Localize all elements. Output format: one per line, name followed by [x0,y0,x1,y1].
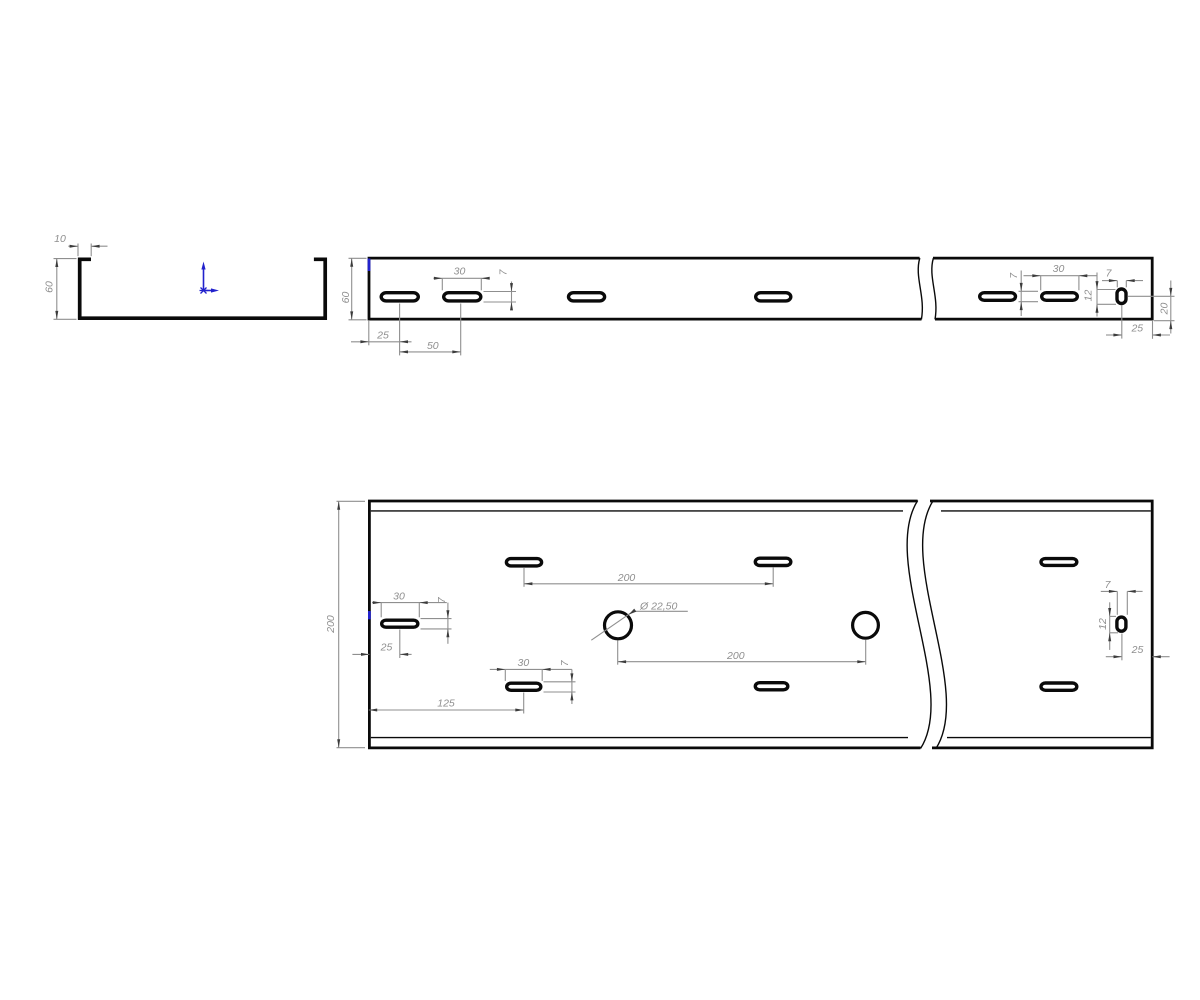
svg-text:20: 20 [1159,303,1171,316]
svg-text:200: 200 [726,650,745,662]
svg-text:125: 125 [437,697,455,709]
svg-text:7: 7 [1008,272,1020,279]
svg-text:30: 30 [454,266,466,278]
svg-text:25: 25 [1131,644,1144,656]
svg-text:25: 25 [376,330,389,342]
svg-text:30: 30 [1053,263,1065,275]
svg-text:60: 60 [340,292,352,304]
svg-text:12: 12 [1097,618,1109,630]
svg-text:60: 60 [43,281,55,293]
svg-text:25: 25 [1130,322,1143,334]
svg-text:200: 200 [325,615,337,634]
svg-text:30: 30 [518,657,530,669]
svg-text:7: 7 [1106,268,1113,280]
svg-text:Ø 22,50: Ø 22,50 [639,600,678,612]
svg-text:7: 7 [497,268,509,275]
svg-text:10: 10 [54,233,66,245]
svg-text:30: 30 [393,590,405,602]
svg-text:50: 50 [427,340,439,352]
svg-text:7: 7 [1105,579,1112,591]
svg-text:12: 12 [1082,290,1094,302]
svg-text:7: 7 [559,659,571,666]
svg-text:25: 25 [380,642,393,654]
svg-text:200: 200 [617,572,636,584]
svg-text:7: 7 [436,596,448,603]
